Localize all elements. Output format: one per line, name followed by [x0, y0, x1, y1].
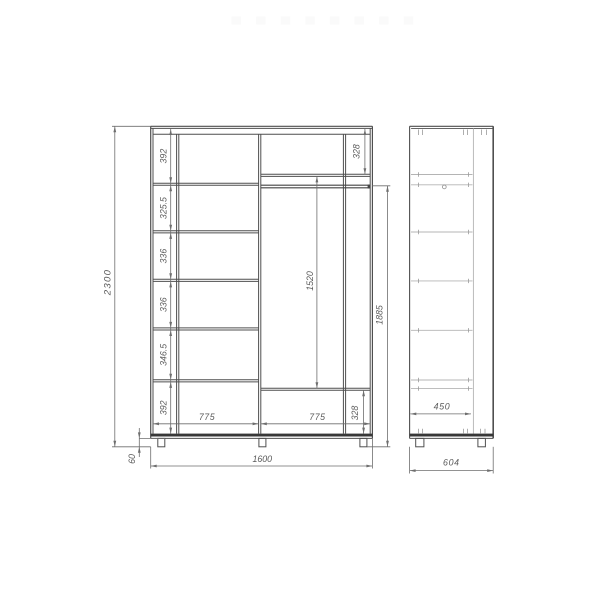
svg-text:604: 604 [443, 458, 460, 468]
svg-text:775: 775 [199, 412, 215, 422]
svg-text:1520: 1520 [305, 271, 315, 291]
svg-text:336: 336 [159, 249, 169, 264]
svg-text:1885: 1885 [374, 305, 384, 325]
svg-text:392: 392 [159, 149, 169, 164]
svg-text:346.5: 346.5 [159, 344, 169, 366]
svg-text:1600: 1600 [253, 454, 273, 464]
svg-text:336: 336 [159, 297, 169, 312]
svg-text:450: 450 [434, 402, 451, 412]
svg-text:60: 60 [127, 454, 137, 464]
svg-text:328: 328 [350, 406, 360, 421]
svg-text:328: 328 [352, 144, 362, 159]
svg-text:775: 775 [309, 412, 325, 422]
svg-text:2300: 2300 [103, 269, 114, 297]
svg-text:392: 392 [159, 400, 169, 415]
svg-text:325.5: 325.5 [159, 197, 169, 219]
